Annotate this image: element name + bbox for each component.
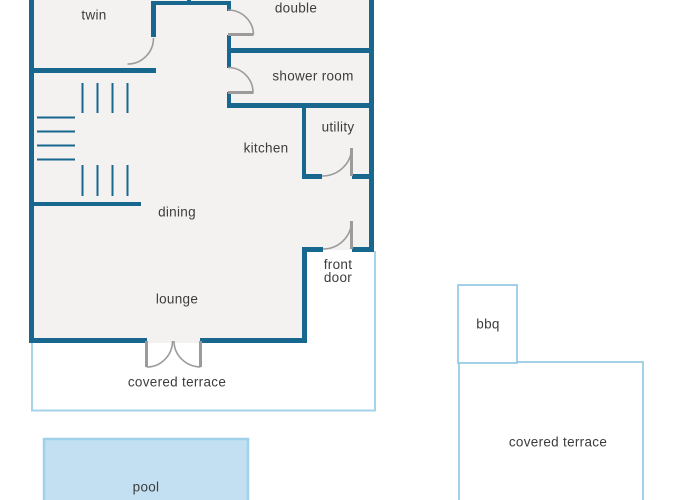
wall-top-stub xyxy=(187,0,191,3)
wall-utility-bottom-right xyxy=(352,174,374,179)
wall-twin-bottom xyxy=(29,68,156,73)
room-label-shower-room: shower room xyxy=(272,70,353,83)
wall-lounge-right xyxy=(302,247,307,343)
room-label-bbq: bbq xyxy=(476,318,499,331)
floor-plan: twin double shower room utility kitchen … xyxy=(0,0,700,500)
french-door-right-swing xyxy=(174,341,201,367)
wall-double-shower-divider xyxy=(227,48,374,53)
wall-corridor-bottom xyxy=(29,202,141,206)
wall-right-exterior xyxy=(369,0,374,252)
wall-lounge-bottom-right xyxy=(200,338,307,343)
french-door-left-swing xyxy=(147,341,173,367)
room-label-utility: utility xyxy=(322,121,355,134)
room-label-kitchen: kitchen xyxy=(244,142,289,155)
wall-hallway-left xyxy=(151,1,156,37)
room-label-pool: pool xyxy=(133,481,160,494)
room-label-front-door: front door xyxy=(313,258,363,284)
room-label-dining: dining xyxy=(158,206,196,219)
wall-left-exterior xyxy=(29,0,34,343)
room-label-double: double xyxy=(275,2,317,15)
covered-terrace-side-outline xyxy=(459,362,643,500)
wall-shower-bottom xyxy=(227,103,374,108)
room-label-covered-terrace-main: covered terrace xyxy=(128,376,226,389)
wall-lounge-bottom-left xyxy=(29,338,147,343)
wall-entrance-step-left xyxy=(305,247,323,252)
wall-kitchen-utility-divider xyxy=(302,103,306,179)
room-label-lounge: lounge xyxy=(156,293,198,306)
wall-entrance-step-right xyxy=(352,247,374,252)
room-label-covered-terrace-side: covered terrace xyxy=(509,436,607,449)
wall-utility-bottom-left xyxy=(302,174,322,179)
room-label-twin: twin xyxy=(81,9,106,22)
